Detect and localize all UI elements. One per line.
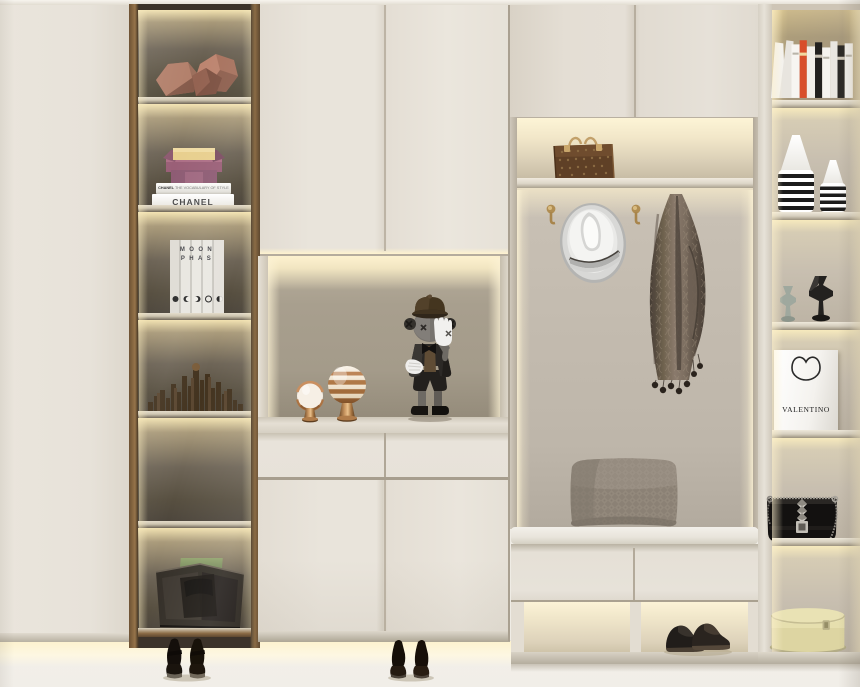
svg-text:VALENTINO: VALENTINO (782, 405, 830, 414)
